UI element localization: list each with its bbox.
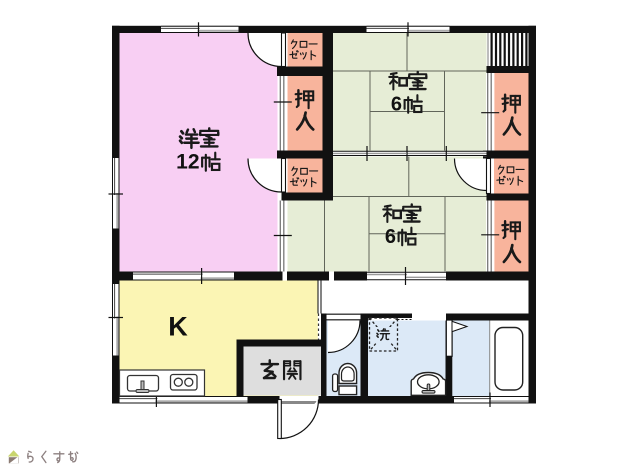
svg-text:K: K (168, 312, 188, 342)
svg-text:12: 12 (176, 151, 199, 174)
svg-text:6: 6 (391, 94, 402, 116)
svg-text:6: 6 (385, 226, 396, 248)
